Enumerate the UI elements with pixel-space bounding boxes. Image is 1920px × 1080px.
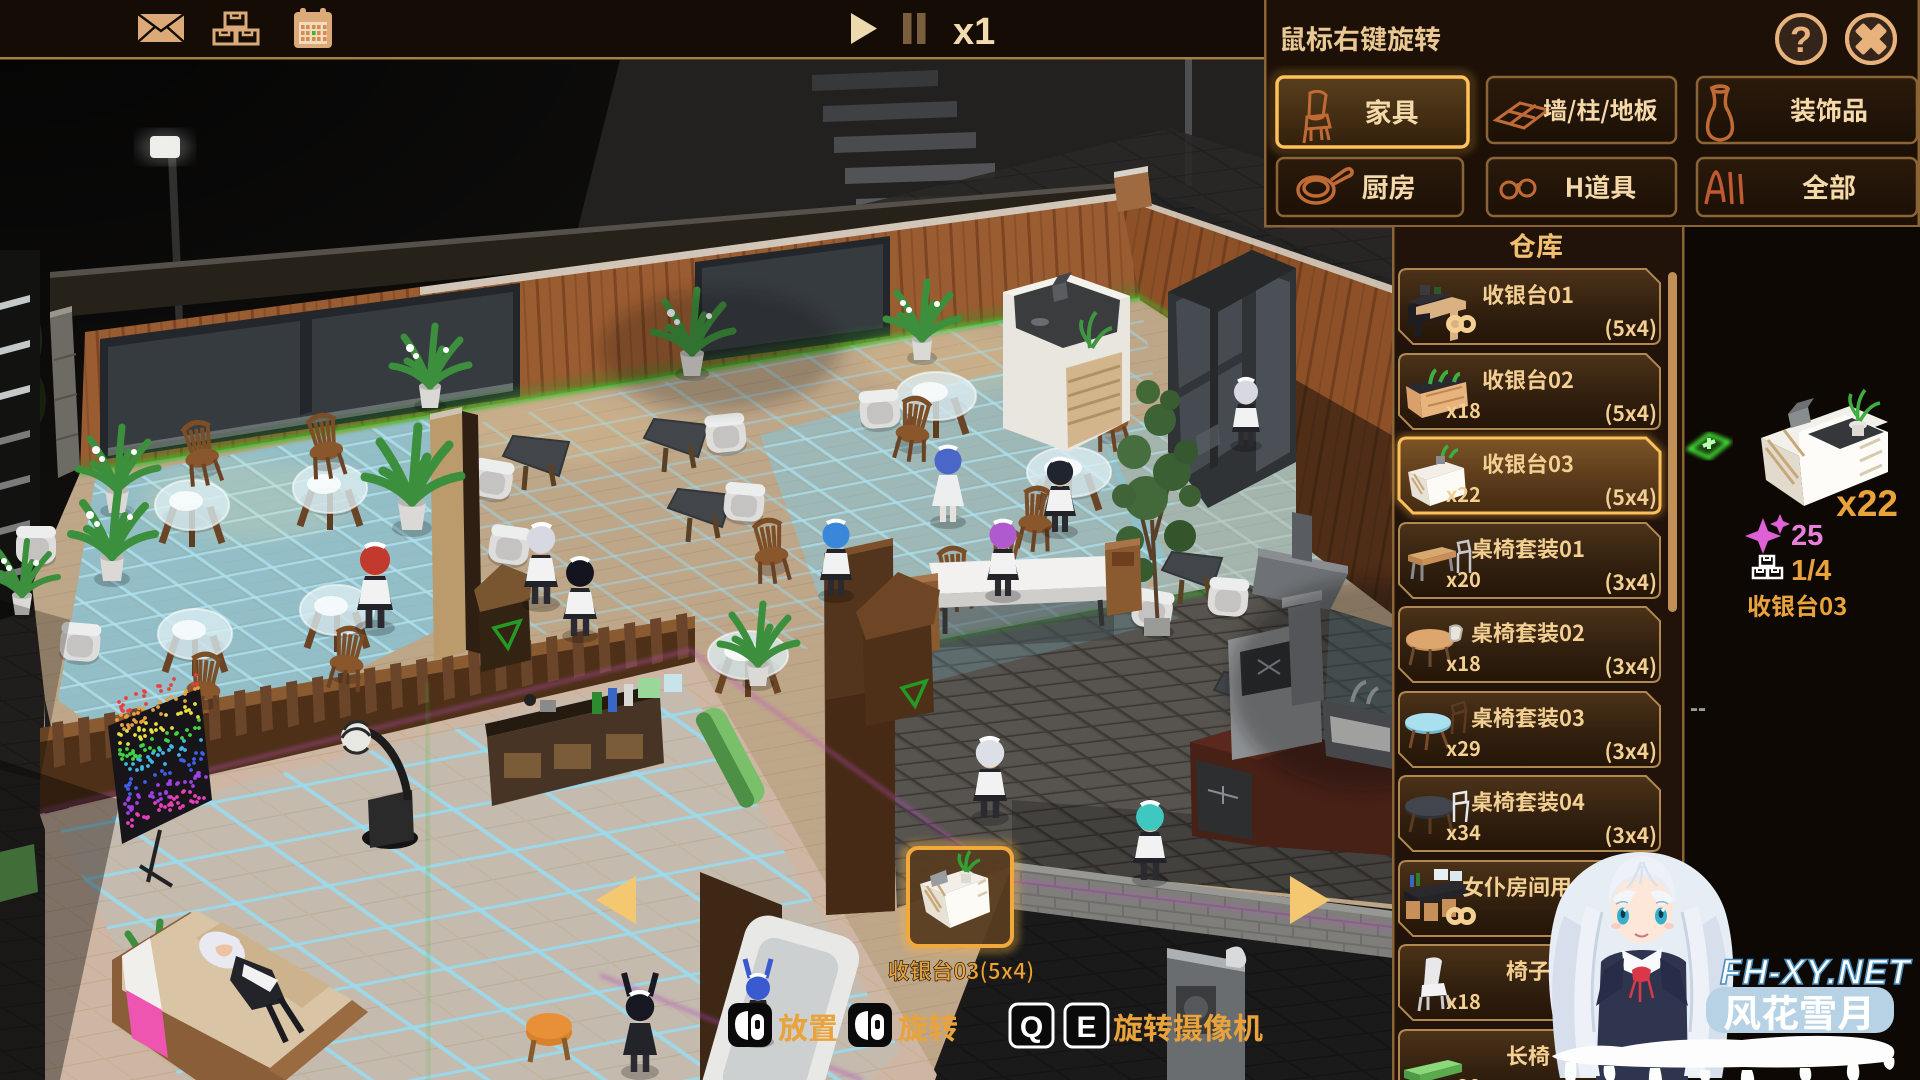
- svg-text:1/4: 1/4: [1791, 555, 1831, 587]
- svg-text:25: 25: [1791, 520, 1823, 552]
- svg-text:FH-XY.NET: FH-XY.NET: [1720, 953, 1912, 992]
- svg-text:E: E: [1076, 1011, 1096, 1044]
- svg-text:x22: x22: [1836, 483, 1898, 524]
- svg-text:x1: x1: [953, 11, 995, 53]
- svg-text:?: ?: [1790, 19, 1812, 60]
- svg-text:Q: Q: [1020, 1011, 1043, 1044]
- svg-text:--: --: [1690, 695, 1706, 722]
